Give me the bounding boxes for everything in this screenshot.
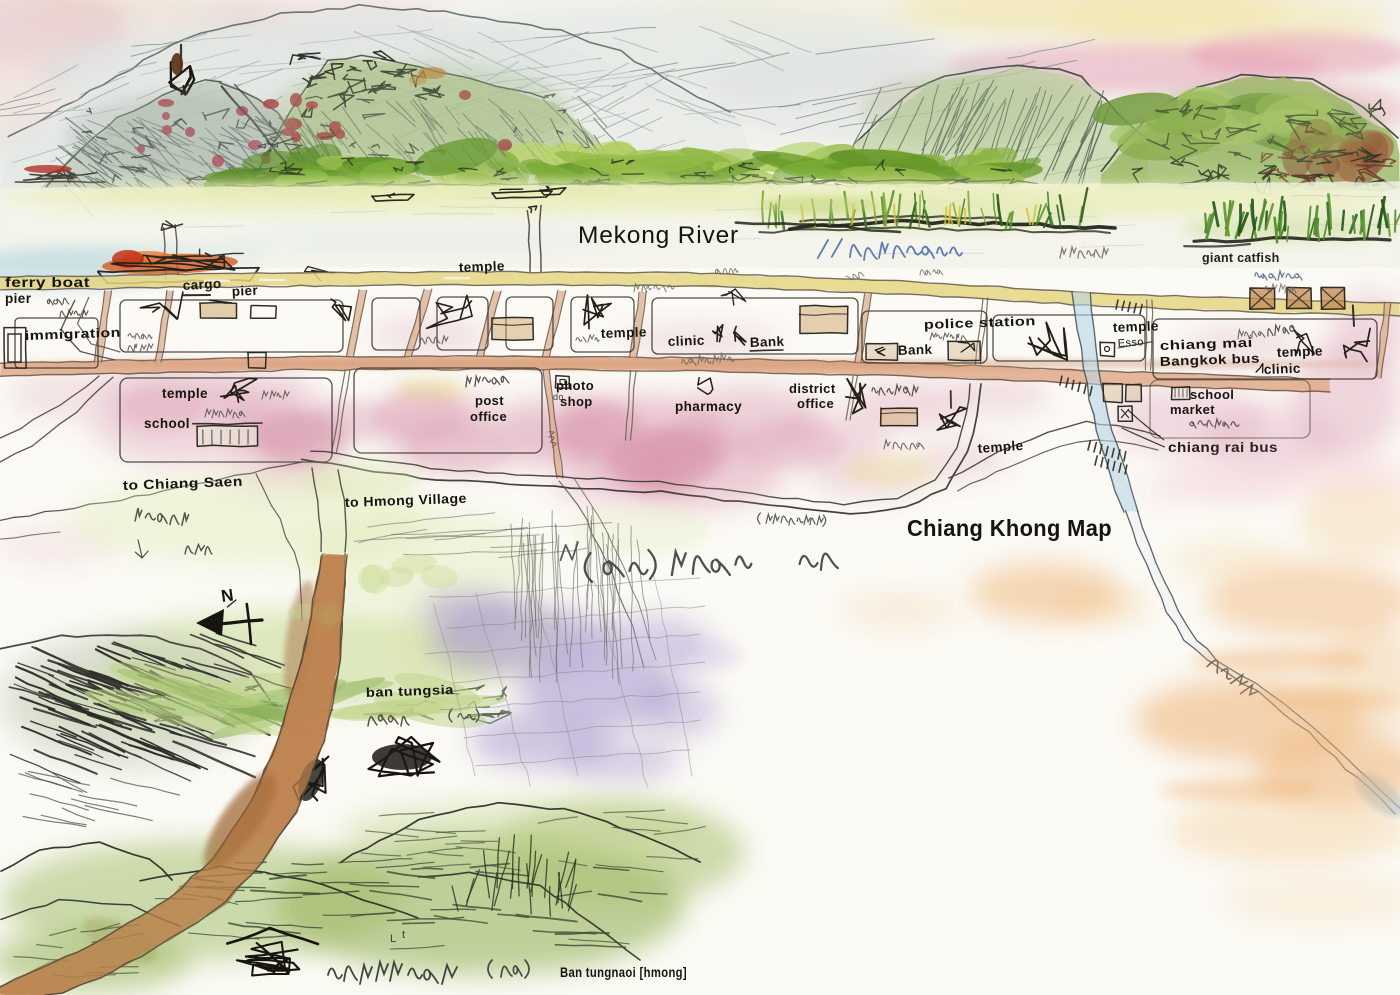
svg-text:market: market (1170, 402, 1215, 417)
svg-text:temple: temple (1277, 343, 1323, 360)
svg-text:chiang rai bus: chiang rai bus (1168, 440, 1278, 455)
svg-text:Bank: Bank (750, 334, 785, 350)
svg-text:Ban tungnaoi [hmong]: Ban tungnaoi [hmong] (560, 965, 687, 980)
svg-text:district: district (789, 381, 836, 396)
svg-text:Chiang Khong Map: Chiang Khong Map (907, 515, 1112, 541)
svg-text:ferry boat: ferry boat (5, 275, 90, 290)
svg-text:Bank: Bank (898, 342, 933, 358)
svg-text:school: school (1190, 387, 1234, 402)
svg-text:school: school (144, 416, 190, 431)
svg-text:pier: pier (231, 283, 258, 299)
svg-text:Esso: Esso (1117, 336, 1144, 350)
svg-text:L: L (390, 933, 397, 945)
svg-text:pier: pier (5, 291, 32, 306)
svg-text:temple: temple (601, 324, 647, 341)
svg-text:temple: temple (162, 386, 208, 401)
svg-text:office: office (470, 409, 507, 424)
svg-text:Mekong River: Mekong River (578, 222, 739, 249)
svg-text:pharmacy: pharmacy (675, 399, 742, 414)
svg-text:shop: shop (560, 394, 593, 409)
svg-text:clinic: clinic (668, 333, 706, 349)
svg-text:post: post (475, 393, 504, 408)
svg-text:temple: temple (459, 258, 505, 275)
svg-text:giant catfish: giant catfish (1202, 251, 1280, 265)
svg-text:temple: temple (977, 438, 1024, 456)
svg-text:cargo: cargo (182, 276, 221, 293)
svg-text:photo: photo (556, 378, 594, 393)
svg-text:t: t (402, 929, 405, 941)
svg-text:ban tungsia: ban tungsia (366, 682, 455, 700)
svg-text:clinic: clinic (1264, 361, 1302, 377)
svg-text:office: office (797, 396, 834, 411)
svg-text:temple: temple (1113, 318, 1159, 335)
